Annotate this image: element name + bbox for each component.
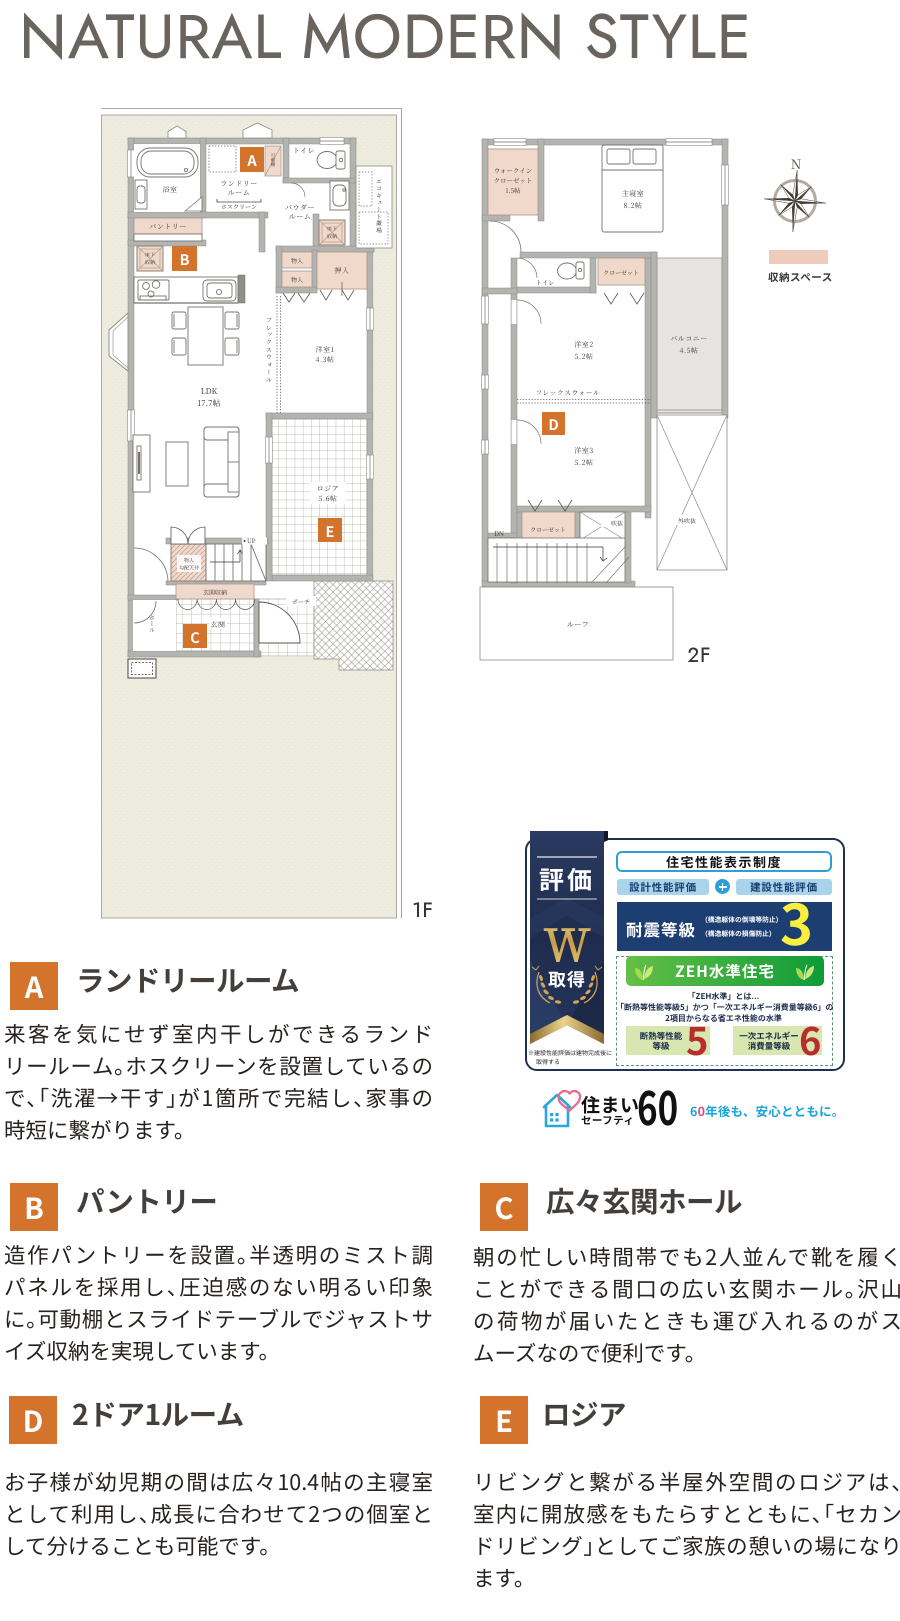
svg-text:ウォークイン: ウォークイン <box>494 166 532 175</box>
svg-text:物入: 物入 <box>184 557 194 564</box>
svg-text:玄関収納: 玄関収納 <box>203 588 227 597</box>
svg-text:C: C <box>190 627 200 648</box>
svg-text:エコキュート置場: エコキュート置場 <box>375 178 384 234</box>
svg-text:D: D <box>548 414 558 435</box>
svg-text:勾配天井: 勾配天井 <box>179 565 199 572</box>
svg-text:可動棚: 可動棚 <box>270 153 276 167</box>
svg-text:クローゼット: クローゼット <box>494 176 533 185</box>
svg-text:床下: 床下 <box>145 252 155 259</box>
svg-text:収納: 収納 <box>145 259 155 266</box>
svg-text:5.6帖: 5.6帖 <box>318 494 337 504</box>
svg-text:ルーム: ルーム <box>228 188 251 198</box>
svg-text:主寝室: 主寝室 <box>622 189 645 199</box>
svg-text:収納スペース: 収納スペース <box>768 270 833 285</box>
svg-text:洋室3: 洋室3 <box>574 446 593 456</box>
svg-text:LDK: LDK <box>201 386 218 397</box>
svg-text:DN: DN <box>494 529 504 538</box>
svg-text:4.5帖: 4.5帖 <box>679 346 698 356</box>
svg-text:外吹抜: 外吹抜 <box>678 516 696 525</box>
svg-text:クローゼット: クローゼット <box>530 525 566 534</box>
svg-text:17.7帖: 17.7帖 <box>197 398 220 409</box>
svg-text:ルーフ: ルーフ <box>567 620 589 630</box>
svg-text:A: A <box>246 150 257 171</box>
svg-text:押入: 押入 <box>335 266 350 276</box>
svg-text:N: N <box>791 154 801 173</box>
svg-text:2F: 2F <box>687 640 712 670</box>
svg-text:8.2帖: 8.2帖 <box>623 201 642 211</box>
svg-text:4.3帖: 4.3帖 <box>315 355 334 365</box>
svg-text:バルコニー: バルコニー <box>670 334 708 344</box>
svg-text:1.5帖: 1.5帖 <box>505 186 521 195</box>
svg-text:5.2帖: 5.2帖 <box>574 352 593 362</box>
svg-text:収納: 収納 <box>327 233 337 240</box>
svg-text:トイレ: トイレ <box>535 278 554 287</box>
svg-text:吹抜: 吹抜 <box>611 519 623 528</box>
svg-text:評価: 評価 <box>539 861 595 897</box>
svg-text:ロジア: ロジア <box>317 484 340 494</box>
svg-text:E: E <box>326 521 335 542</box>
svg-text:浴室: 浴室 <box>163 185 178 195</box>
svg-text:フレックスウォール: フレックスウォール <box>265 316 274 384</box>
svg-text:床下: 床下 <box>327 226 337 233</box>
svg-text:ポーチ: ポーチ <box>292 597 310 606</box>
svg-text:物入: 物入 <box>291 275 303 284</box>
svg-text:物入: 物入 <box>291 256 303 265</box>
svg-text:1F: 1F <box>412 895 434 925</box>
svg-text:洋室1: 洋室1 <box>316 345 335 355</box>
svg-text:クローゼット: クローゼット <box>603 268 639 277</box>
svg-text:ホスクリーン: ホスクリーン <box>221 202 257 211</box>
svg-text:UP: UP <box>247 536 256 545</box>
svg-text:B: B <box>180 249 190 270</box>
svg-text:ルーム: ルーム <box>289 212 312 222</box>
svg-text:取得: 取得 <box>548 966 586 992</box>
svg-text:トイレ: トイレ <box>293 146 315 156</box>
svg-text:W: W <box>543 910 591 974</box>
svg-text:玄関: 玄関 <box>211 620 226 630</box>
svg-text:5.2帖: 5.2帖 <box>574 458 593 468</box>
svg-text:フレックスウォール: フレックスウォール <box>536 388 601 397</box>
svg-text:洋室2: 洋室2 <box>574 340 593 350</box>
svg-text:パントリー: パントリー <box>149 222 187 232</box>
